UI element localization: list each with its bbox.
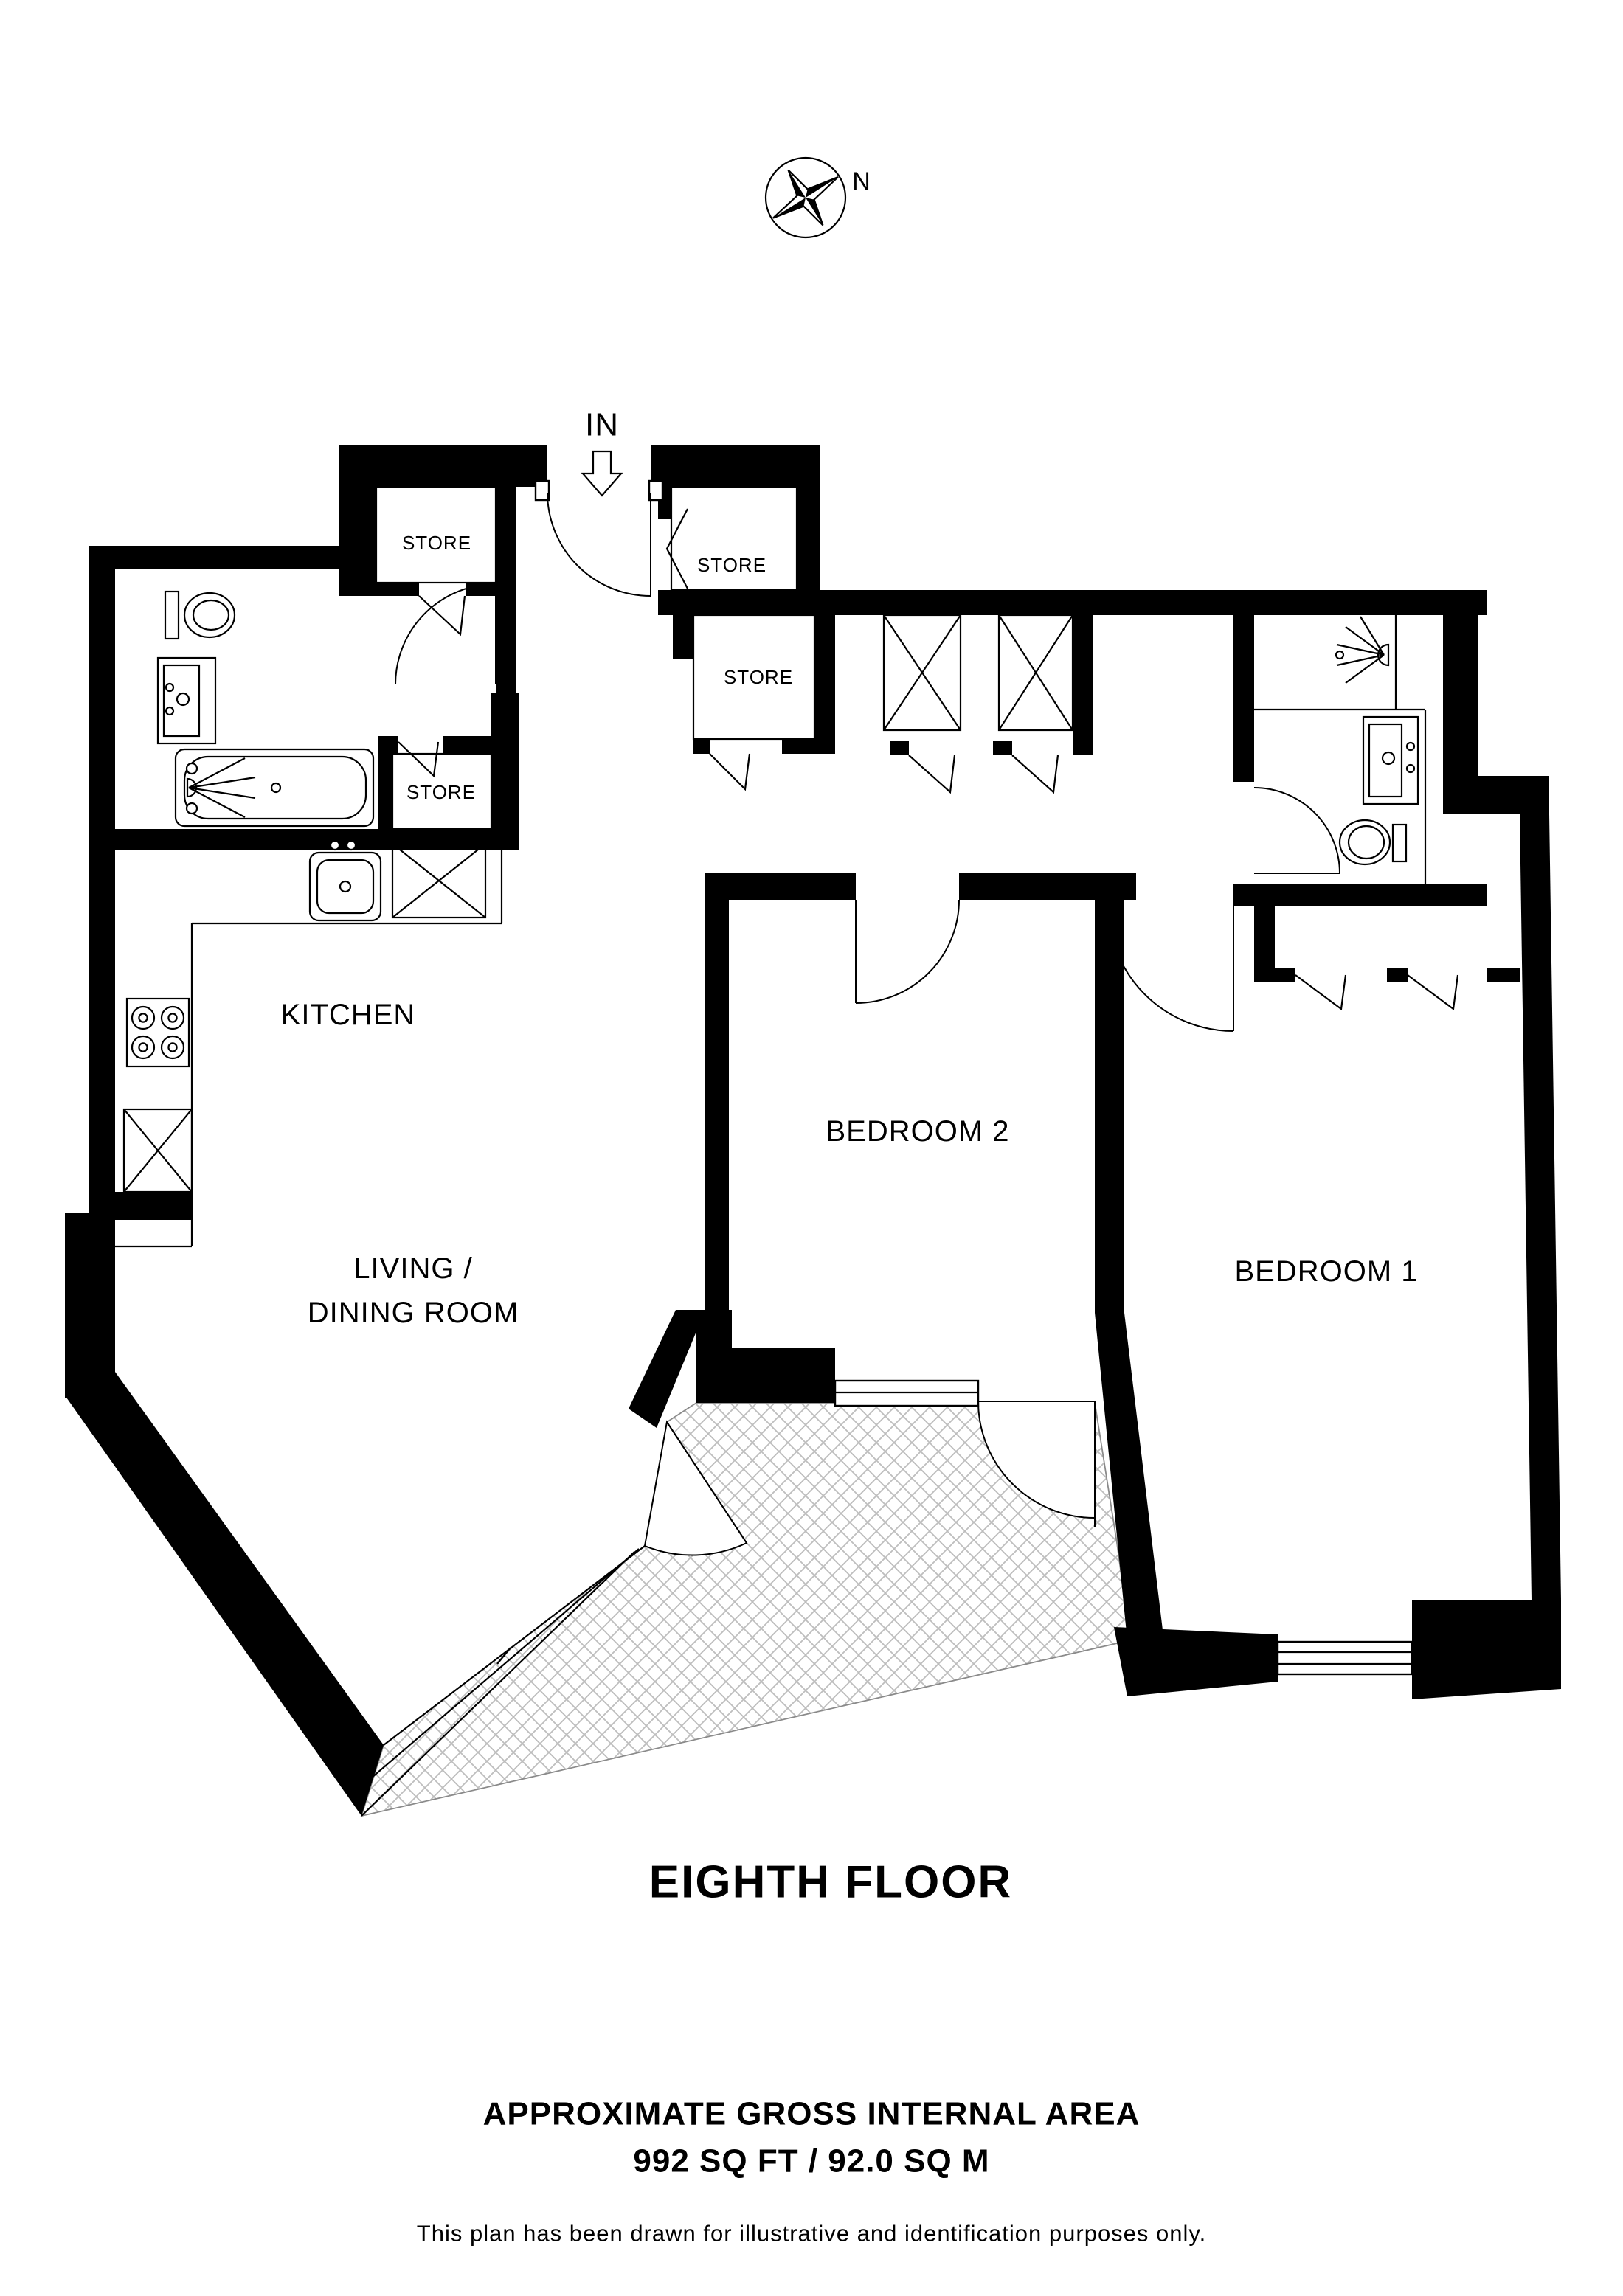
interior-doors — [395, 509, 1458, 1031]
shower-drain — [1336, 651, 1343, 659]
wall-bedroom1-right — [1520, 814, 1561, 1600]
wall-left-block — [65, 1213, 115, 1398]
ensuite-vanity-tap2 — [1407, 765, 1414, 772]
hob-dot3 — [139, 1043, 147, 1051]
bedroom1-label: BEDROOM 1 — [1234, 1255, 1418, 1288]
wall-bed2-bottom — [696, 1348, 835, 1403]
ensuite-toilet — [1340, 820, 1406, 864]
wall-store3-left-stub — [673, 615, 693, 659]
wall-bathroom-top — [89, 546, 376, 569]
utility-cupboard-2 — [999, 615, 1073, 730]
bathroom-toilet — [165, 592, 235, 639]
bedroom2-label: BEDROOM 2 — [826, 1115, 1009, 1148]
wall-hall-west — [491, 693, 519, 850]
ensuite-vanity-drain — [1383, 752, 1394, 764]
bath-drain — [271, 783, 280, 792]
ensuite-toilet-cistern — [1393, 825, 1406, 861]
entrance-door-arc — [547, 493, 651, 596]
hob-dot1 — [139, 1013, 147, 1022]
wall-lobby-east — [496, 596, 516, 693]
hob-dot4 — [168, 1043, 176, 1051]
bath-tap2 — [187, 803, 197, 814]
toilet-cistern — [165, 592, 179, 639]
wall-store1-right — [496, 487, 516, 596]
entrance-arrow-icon — [583, 451, 621, 496]
kitchen-label: KITCHEN — [281, 999, 416, 1031]
entrance-in-label: IN — [585, 407, 619, 443]
bedroom1-door-arc — [1108, 906, 1233, 1031]
wall-bottom-right-block — [1412, 1600, 1561, 1699]
wall-top-right-seg — [651, 445, 820, 487]
bathroom-door-arc — [395, 584, 496, 684]
kitchen-sink — [310, 841, 381, 920]
wall-store2-right — [797, 445, 820, 615]
bath-tap1 — [187, 763, 197, 774]
wall-store3-bottom-b — [782, 739, 814, 754]
sink-drain — [340, 881, 350, 892]
bathroom-fixtures — [158, 592, 373, 826]
wall-corridor-south-a — [729, 873, 856, 900]
toilet-bowl-inner — [193, 600, 229, 630]
wall-corridor-top — [820, 590, 1487, 615]
bedroom2-door-arc — [856, 900, 959, 1003]
sink-tap1 — [331, 841, 339, 850]
store3-label: STORE — [724, 666, 793, 688]
ensuite-vanity-tap1 — [1407, 743, 1414, 750]
wall-store4-left — [378, 736, 392, 829]
store4-bifold-door — [398, 742, 438, 776]
wall-store4-top-b — [443, 736, 508, 754]
entrance-door — [536, 481, 662, 596]
wall-cupboard-front-stub-a — [890, 741, 909, 755]
bedroom1-window — [1278, 1642, 1412, 1674]
wall-bifold-stub-a — [1270, 968, 1295, 982]
store1-label: STORE — [402, 532, 471, 554]
store4-label: STORE — [406, 781, 476, 803]
wall-ensuite-bottom — [1233, 884, 1487, 906]
kitchen-appliance-1 — [392, 844, 485, 918]
plan-titles: EIGHTH FLOOR APPROXIMATE GROSS INTERNAL … — [417, 1857, 1206, 2247]
wall-bottom-left-block — [1114, 1627, 1278, 1696]
wall-ensuite-left — [1233, 615, 1254, 782]
utility-cupboard-1 — [884, 615, 961, 730]
vanity-tap2 — [166, 707, 173, 715]
cupboard-bifold-a — [909, 755, 955, 792]
store3-bifold-door — [710, 754, 750, 789]
bathroom-vanity — [158, 658, 215, 743]
store1-bifold-door — [419, 596, 465, 634]
bathroom-bath — [176, 749, 373, 826]
wall-store1-left — [339, 445, 376, 596]
compass-north-label: N — [852, 167, 871, 195]
wall-cupboard-front-stub-b — [993, 741, 1012, 755]
wall-bed2-bed1-divider — [1095, 900, 1124, 1313]
store2-label: STORE — [697, 554, 766, 576]
area-heading: APPROXIMATE GROSS INTERNAL AREA — [483, 2096, 1141, 2132]
cupboard-bifold-b — [1012, 755, 1058, 792]
entrance-marker: IN — [583, 407, 621, 496]
ensuite-toilet-bowl-inner — [1349, 826, 1384, 859]
compass-icon: N — [766, 158, 871, 237]
hob-dot2 — [168, 1013, 176, 1022]
area-value: 992 SQ FT / 92.0 SQ M — [633, 2143, 989, 2179]
wall-sw-diagonal — [65, 1372, 384, 1816]
ensuite-fixtures — [1254, 615, 1425, 884]
vanity-tap1 — [166, 684, 173, 691]
wall-corridor-south-b — [959, 873, 1136, 900]
ensuite-door-arc — [1254, 788, 1340, 873]
wall-store1-bottom-a — [376, 583, 419, 596]
floor-title: EIGHTH FLOOR — [649, 1857, 1012, 1908]
wall-left-exterior — [89, 546, 115, 1213]
ensuite-vanity — [1363, 717, 1418, 804]
wall-store3-bottom-a — [693, 739, 710, 754]
closet-bifold-a — [1295, 975, 1346, 1009]
kitchen-appliance-2 — [124, 1109, 192, 1192]
wall-bath-kitchen-divider — [89, 829, 519, 850]
kitchen-fixtures — [115, 841, 502, 1246]
shower-spray — [1337, 617, 1384, 683]
wall-kitchen-stub — [115, 1192, 192, 1220]
vanity-drain — [177, 693, 189, 705]
store2-side-door — [667, 509, 688, 589]
wall-right-jut — [1443, 776, 1549, 814]
wall-cupboard-right-stub — [1073, 615, 1093, 755]
wall-bifold-stub-c — [1487, 968, 1520, 982]
wall-ensuite-right — [1443, 590, 1478, 776]
sink-tap2 — [347, 841, 356, 850]
storage-outlines — [376, 487, 1073, 829]
closet-bifold-b — [1408, 975, 1458, 1009]
floor-plan-canvas: N IN STORE STORE STORE STORE KITCHEN LIV… — [0, 0, 1623, 2296]
living-label-line1: LIVING / — [353, 1252, 472, 1285]
kitchen-hob — [127, 999, 189, 1067]
wall-bedroom2-left — [705, 873, 729, 1381]
living-label-line2: DINING ROOM — [308, 1297, 519, 1329]
disclaimer-text: This plan has been drawn for illustrativ… — [417, 2221, 1206, 2247]
wall-store2-bottom — [658, 590, 820, 615]
ensuite-shower — [1336, 617, 1388, 683]
wall-bifold-stub-b — [1387, 968, 1408, 982]
